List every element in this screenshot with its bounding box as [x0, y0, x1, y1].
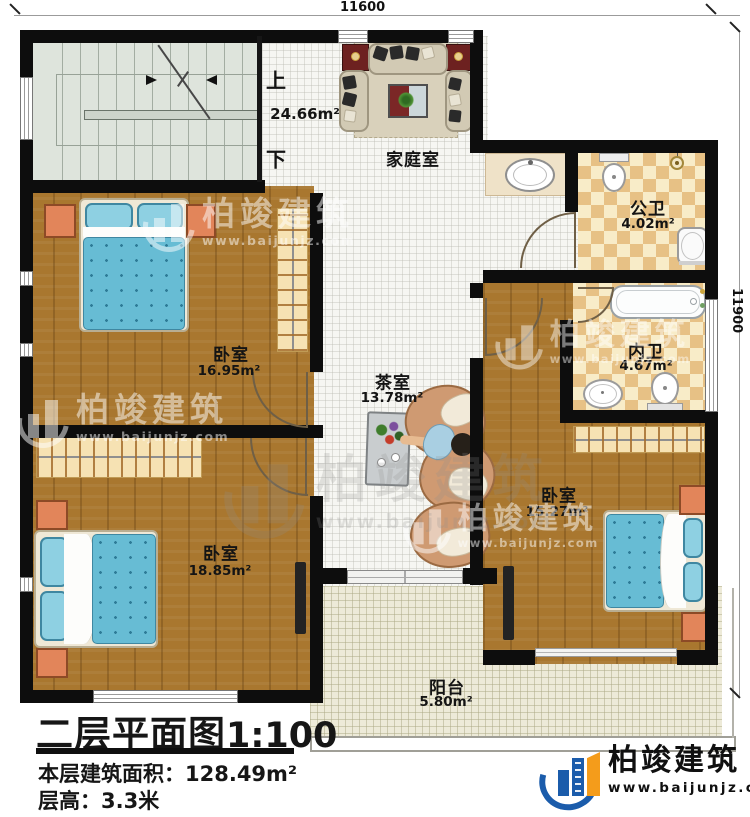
sofa-pillow	[448, 109, 461, 122]
toilet-tank	[599, 153, 629, 162]
sink-ledge	[679, 261, 706, 265]
stair-arrow-right-icon	[146, 75, 157, 85]
brand-logo: 柏竣建筑 www.baijunjz.com	[545, 744, 750, 802]
sofa-pillow	[343, 109, 357, 123]
tv	[503, 566, 514, 640]
nightstand	[679, 485, 707, 515]
dimension-tick	[729, 21, 740, 32]
tea-cup	[391, 453, 400, 462]
brand-url: www.baijunjz.com	[608, 780, 750, 796]
wall-segment	[483, 270, 718, 283]
window	[93, 690, 238, 703]
floor-height-line: 层高：3.3米	[38, 785, 159, 815]
wash-basin-inner	[513, 164, 547, 186]
window	[20, 343, 33, 357]
floor-area-value: 128.49m²	[185, 762, 297, 786]
floor-plan: 上 24.66m² 下 家庭室 公卫 4.02m² 内卫 4.67m² 卧室 1…	[0, 0, 750, 817]
end-table-left-ornament	[351, 52, 360, 61]
sofa-pillow	[389, 45, 404, 60]
sofa-pillow	[448, 93, 462, 107]
sofa-pillow	[448, 77, 462, 91]
bed-pillow	[137, 203, 183, 230]
nightstand	[681, 612, 707, 642]
floor-height-value: 3.3米	[101, 789, 159, 813]
dimension-tick	[9, 3, 20, 14]
wall-segment	[470, 283, 483, 298]
public-bath-area: 4.02m²	[621, 216, 674, 232]
balcony-area: 5.80m²	[419, 694, 472, 710]
wall-segment	[310, 496, 323, 572]
wall-segment	[20, 425, 323, 438]
balcony-railing-side	[732, 588, 734, 738]
bedroom1-area: 16.95m²	[198, 363, 261, 379]
tea-room-area: 13.78m²	[361, 390, 424, 406]
bedroom3-label: 卧室	[541, 482, 577, 507]
wall-segment	[318, 568, 347, 584]
tv	[295, 562, 306, 634]
bathtub-inner	[616, 290, 700, 314]
wardrobe	[573, 426, 705, 453]
balcony-door-track	[535, 648, 677, 657]
bathtub-drain	[690, 298, 697, 305]
sofa-pillow	[342, 75, 357, 90]
wall-segment	[310, 193, 323, 372]
sink-inner	[589, 384, 617, 404]
nightstand	[186, 204, 216, 238]
tea-cup	[377, 458, 386, 467]
door-leaf	[306, 372, 308, 428]
toilet-drain	[663, 386, 667, 390]
brand-name: 柏竣建筑	[608, 744, 750, 777]
wall-segment	[470, 30, 483, 153]
window	[705, 299, 718, 412]
window	[448, 30, 474, 43]
bedroom2-area: 18.85m²	[189, 563, 252, 579]
dimension-line-top	[14, 15, 740, 16]
bedroom1-label: 卧室	[213, 341, 249, 366]
window	[20, 271, 33, 286]
dimension-top-value: 11600	[340, 0, 385, 15]
wall-segment	[677, 650, 718, 665]
wall-segment	[20, 30, 483, 43]
plant	[398, 92, 414, 108]
door-leaf	[485, 298, 487, 356]
wall-segment	[483, 650, 535, 665]
nightstand	[36, 500, 68, 530]
stair-handrail	[84, 110, 258, 120]
stair-up-label: 上	[266, 65, 286, 94]
nightstand	[44, 204, 76, 238]
bedroom2-label: 卧室	[203, 540, 239, 565]
window	[20, 77, 33, 140]
dimension-tick	[705, 3, 716, 14]
door-leaf	[305, 438, 307, 496]
bed-blanket	[606, 514, 664, 608]
stair-arrow-left-icon	[206, 75, 217, 85]
bed-blanket	[83, 237, 185, 330]
wall-segment	[470, 358, 483, 585]
pendant-lamp-dot	[675, 161, 679, 165]
faucet-icon	[528, 160, 533, 165]
flower-arrangement	[372, 418, 404, 448]
bed-pillow	[683, 562, 703, 602]
window	[338, 30, 368, 43]
toilet-drain	[612, 175, 616, 179]
wall-segment	[20, 180, 265, 193]
wall-segment	[565, 153, 578, 212]
wall-segment	[483, 140, 718, 153]
floor-area-line: 本层建筑面积：128.49m²	[38, 758, 297, 788]
floor-height-label: 层高：	[38, 789, 101, 813]
stair-down-label: 下	[266, 144, 286, 173]
sink-inner	[681, 232, 704, 260]
sofa-pillow	[405, 46, 420, 61]
ensuite-bath-area: 4.67m²	[619, 358, 672, 374]
stair-edge-wall	[257, 36, 262, 182]
wall-segment	[560, 410, 718, 423]
end-table-right-ornament	[454, 52, 463, 61]
door-leaf	[574, 212, 576, 268]
nightstand	[36, 648, 68, 678]
dimension-line-right	[739, 32, 740, 698]
wall-segment	[560, 320, 573, 423]
sink-drain	[601, 391, 604, 394]
family-room-area: 24.66m²	[270, 105, 340, 123]
dimension-right-value: 11900	[729, 288, 744, 333]
bed-pillow	[683, 518, 703, 558]
bed-pillow	[85, 203, 133, 230]
bed-blanket	[92, 534, 156, 644]
wardrobe	[277, 208, 308, 352]
door-leaf	[578, 287, 614, 289]
title-underline	[36, 748, 294, 754]
brand-logo-icon	[545, 744, 599, 802]
wall-segment	[310, 568, 323, 703]
bedroom3-area: 15.27m²	[526, 504, 589, 520]
wardrobe	[36, 436, 202, 478]
floor-area-label: 本层建筑面积：	[38, 762, 185, 786]
window	[20, 577, 33, 592]
sliding-door	[347, 570, 463, 584]
family-room-label: 家庭室	[386, 146, 440, 171]
